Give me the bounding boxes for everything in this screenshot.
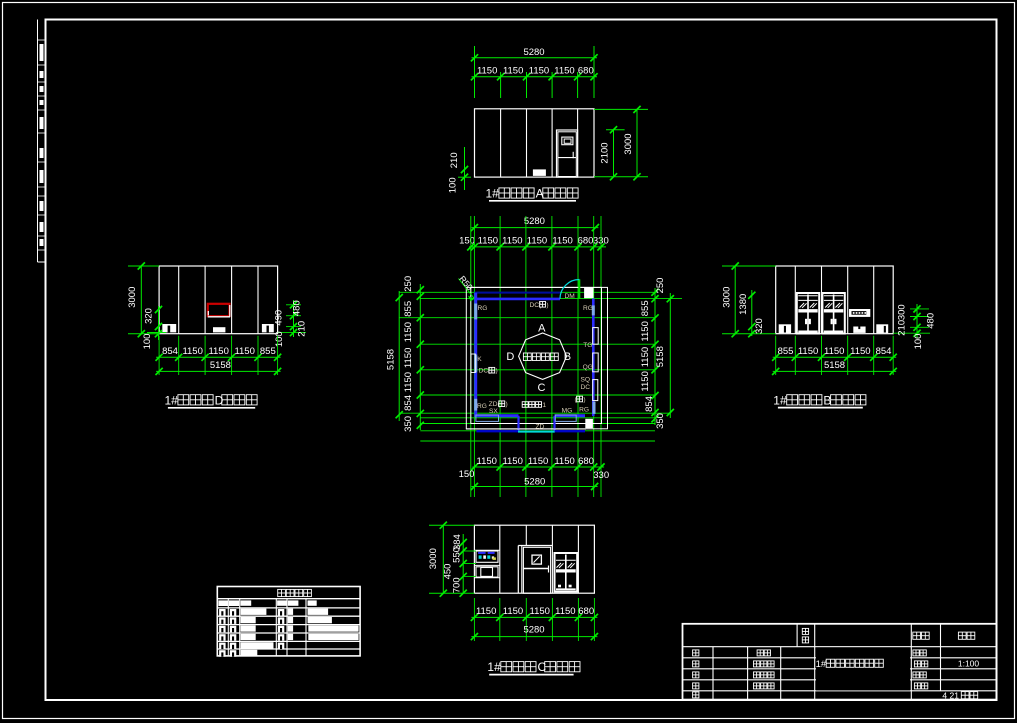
svg-text:ZD: ZD	[536, 423, 545, 430]
svg-text:1: 1	[542, 402, 546, 409]
svg-text:100: 100	[913, 334, 924, 350]
svg-text:1150: 1150	[555, 606, 575, 617]
svg-text:250: 250	[655, 278, 666, 294]
svg-text:5280: 5280	[523, 47, 544, 58]
svg-text:QG: QG	[583, 364, 593, 371]
svg-text:A: A	[538, 322, 546, 334]
svg-text:1#: 1#	[165, 393, 179, 407]
svg-text:): )	[583, 397, 585, 404]
svg-text:1150: 1150	[528, 456, 548, 467]
svg-text:1150: 1150	[850, 346, 870, 357]
svg-text:680: 680	[578, 236, 594, 247]
svg-text:350: 350	[403, 416, 414, 432]
svg-text:100: 100	[448, 177, 459, 193]
svg-text:D: D	[506, 351, 514, 363]
svg-text:1150: 1150	[640, 321, 651, 341]
svg-text:300: 300	[896, 304, 907, 320]
svg-text:1150: 1150	[824, 346, 844, 357]
svg-text:854: 854	[403, 395, 414, 411]
svg-text:RG: RG	[583, 305, 593, 312]
svg-text:2100: 2100	[600, 142, 611, 163]
svg-text:1150: 1150	[554, 456, 574, 467]
svg-text:RG: RG	[477, 403, 487, 410]
svg-text:5158: 5158	[385, 349, 396, 370]
svg-text:210: 210	[449, 152, 460, 168]
svg-text:1150: 1150	[182, 346, 202, 357]
svg-text:1150: 1150	[478, 236, 498, 247]
svg-text:855: 855	[403, 301, 414, 317]
svg-text:854: 854	[644, 396, 655, 412]
svg-text:1#: 1#	[773, 393, 787, 407]
svg-text:K: K	[477, 356, 482, 363]
svg-text:490: 490	[274, 310, 285, 326]
svg-text:1150: 1150	[502, 236, 522, 247]
svg-text:1150: 1150	[403, 322, 414, 342]
svg-text:330: 330	[593, 470, 609, 481]
svg-text:854: 854	[162, 346, 178, 357]
svg-text:1150: 1150	[476, 606, 496, 617]
svg-text:1#: 1#	[486, 187, 500, 201]
svg-text:854: 854	[876, 346, 892, 357]
svg-text:450: 450	[442, 564, 453, 580]
svg-text:5280: 5280	[524, 477, 545, 488]
svg-text:150: 150	[459, 236, 475, 247]
svg-text:SQ: SQ	[580, 377, 590, 384]
svg-text:RG: RG	[478, 305, 488, 312]
svg-text:680: 680	[578, 66, 594, 77]
svg-text:1150: 1150	[527, 236, 547, 247]
svg-text:1150: 1150	[503, 606, 523, 617]
svg-text:1150: 1150	[503, 66, 523, 77]
svg-text:DM: DM	[565, 293, 575, 300]
svg-text:680: 680	[578, 456, 594, 467]
svg-text:100: 100	[142, 334, 153, 350]
svg-text:1150: 1150	[640, 371, 651, 391]
svg-text:1150: 1150	[477, 456, 497, 467]
svg-text:480: 480	[926, 313, 937, 329]
svg-text:210: 210	[896, 320, 907, 336]
svg-text:4 21: 4 21	[942, 690, 959, 700]
svg-text:1150: 1150	[640, 347, 651, 367]
svg-text:320: 320	[754, 318, 765, 334]
svg-text:): )	[506, 401, 508, 408]
svg-text:5158: 5158	[824, 360, 845, 371]
svg-text:DC: DC	[580, 384, 590, 391]
svg-text:1150: 1150	[234, 346, 254, 357]
svg-text:1150: 1150	[554, 66, 574, 77]
svg-text:150: 150	[459, 469, 475, 480]
svg-text:855: 855	[778, 346, 794, 357]
svg-text:855: 855	[640, 300, 651, 316]
svg-text:): )	[546, 302, 548, 309]
svg-text:1150: 1150	[403, 372, 414, 392]
svg-text:DC(: DC(	[529, 302, 542, 309]
svg-text:1150: 1150	[552, 236, 572, 247]
svg-text:1150: 1150	[502, 456, 522, 467]
svg-text:350: 350	[655, 413, 666, 429]
svg-text:1150: 1150	[530, 606, 550, 617]
svg-text:C: C	[538, 382, 546, 394]
svg-text:3000: 3000	[428, 548, 439, 569]
svg-text:480: 480	[292, 300, 303, 316]
svg-text:210: 210	[297, 321, 308, 337]
svg-text:5280: 5280	[523, 624, 544, 635]
svg-text:700: 700	[452, 577, 463, 593]
svg-text:550: 550	[451, 547, 462, 563]
svg-text:SX: SX	[489, 408, 498, 415]
svg-text:320: 320	[143, 308, 154, 324]
svg-text:1150: 1150	[208, 346, 228, 357]
svg-text:): )	[496, 368, 498, 375]
svg-text:TG: TG	[583, 342, 592, 349]
svg-text:680: 680	[578, 606, 594, 617]
svg-text:1150: 1150	[529, 66, 549, 77]
svg-text:1150: 1150	[403, 348, 414, 368]
svg-text:RG: RG	[579, 406, 589, 413]
svg-text:3000: 3000	[721, 287, 732, 308]
svg-text:B: B	[564, 351, 571, 363]
svg-text:1#: 1#	[816, 659, 827, 670]
svg-text:1150: 1150	[477, 66, 497, 77]
svg-text:855: 855	[260, 346, 276, 357]
svg-text:1150: 1150	[798, 346, 818, 357]
svg-text:3000: 3000	[623, 133, 634, 154]
svg-text:DC(: DC(	[479, 368, 492, 375]
svg-text:5280: 5280	[524, 216, 545, 227]
svg-text:1:100: 1:100	[958, 659, 980, 669]
svg-text:5158: 5158	[210, 360, 231, 371]
svg-text:MG: MG	[562, 407, 573, 414]
svg-text:3000: 3000	[127, 287, 138, 308]
svg-text:5158: 5158	[655, 346, 666, 367]
svg-text:100: 100	[274, 331, 285, 347]
svg-text:250: 250	[403, 276, 414, 292]
svg-text:1380: 1380	[738, 294, 749, 315]
svg-text:1#: 1#	[487, 660, 501, 674]
